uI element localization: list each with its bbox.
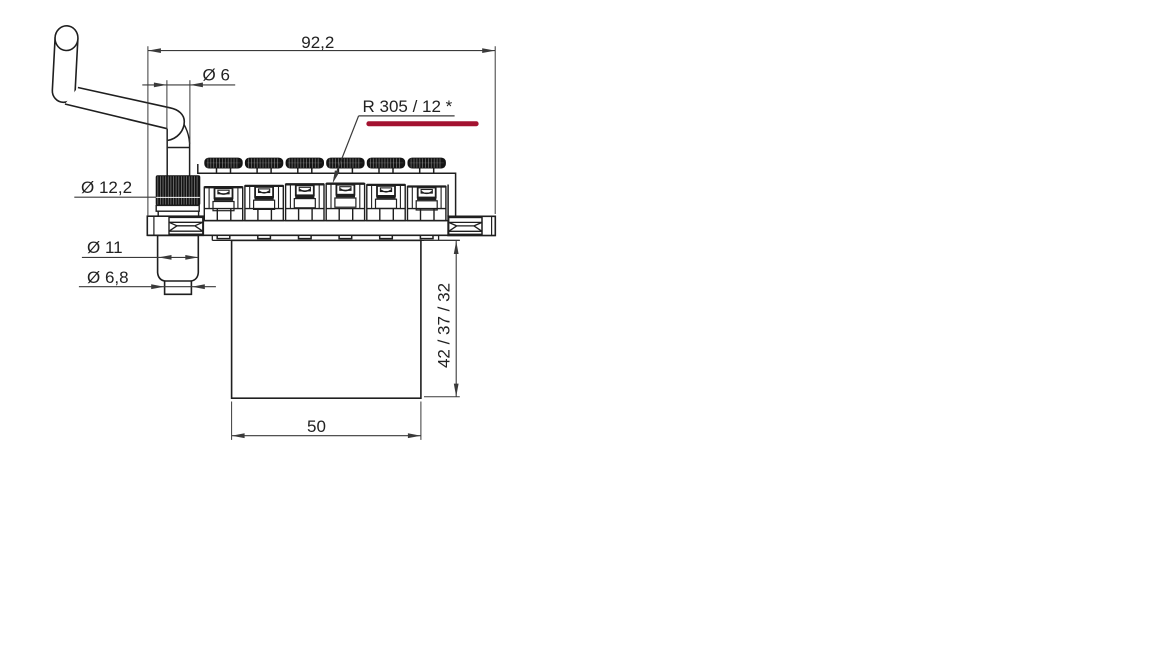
svg-text:Ø 6: Ø 6: [203, 66, 230, 85]
svg-text:Ø 12,2: Ø 12,2: [81, 178, 132, 197]
svg-text:42 / 37 / 32: 42 / 37 / 32: [435, 283, 454, 368]
svg-text:R 305 / 12 *: R 305 / 12 *: [363, 97, 453, 116]
svg-text:Ø 11: Ø 11: [87, 238, 123, 257]
svg-text:Ø 6,8: Ø 6,8: [87, 268, 129, 287]
svg-text:50: 50: [307, 417, 326, 436]
svg-text:92,2: 92,2: [301, 33, 334, 52]
